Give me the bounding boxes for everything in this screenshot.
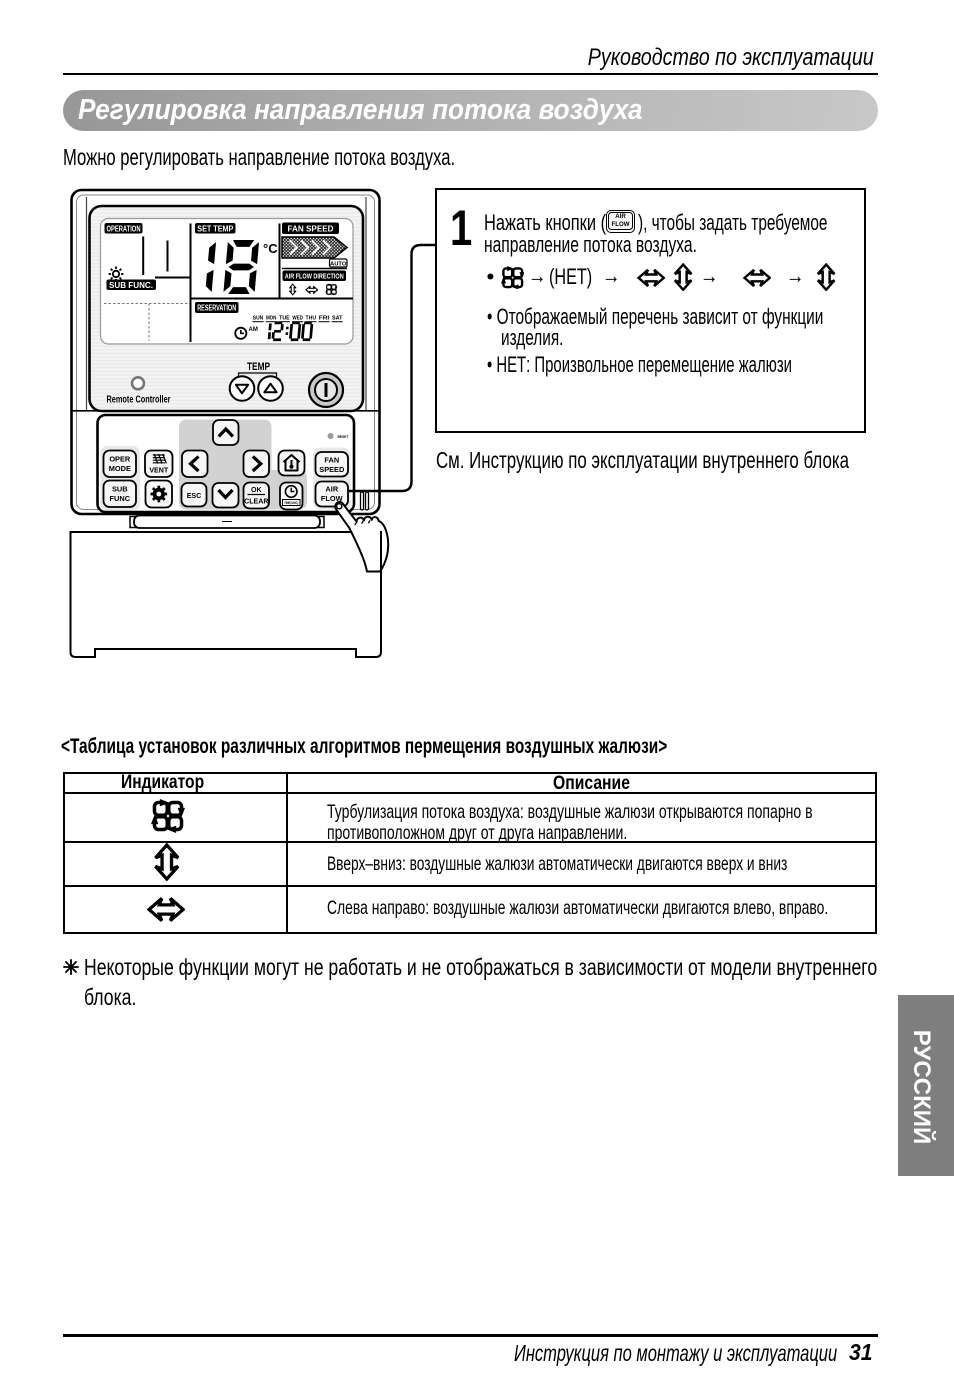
svg-text:SUN: SUN: [253, 316, 264, 322]
svg-text:MODE: MODE: [109, 464, 131, 473]
svg-text:AIR: AIR: [325, 485, 338, 494]
svg-text:TEMP: TEMP: [247, 361, 270, 373]
svg-text:TUE: TUE: [279, 316, 290, 322]
svg-text:ESC: ESC: [187, 492, 202, 500]
svg-text:OPERATION: OPERATION: [107, 224, 141, 233]
svg-text:THU: THU: [306, 316, 317, 322]
svg-text:RESERVATION: RESERVATION: [197, 304, 236, 313]
svg-text:VENT: VENT: [149, 467, 169, 475]
svg-text:AM: AM: [249, 327, 258, 333]
svg-text:CLEAR: CLEAR: [244, 498, 268, 506]
svg-text:TIME(ON/C): TIME(ON/C): [284, 501, 298, 505]
svg-text:°C: °C: [263, 241, 278, 256]
svg-text:OK: OK: [251, 486, 263, 494]
svg-text:WED: WED: [292, 316, 303, 322]
svg-text:SPEED: SPEED: [319, 465, 345, 474]
svg-text:FAN SPEED: FAN SPEED: [288, 225, 334, 234]
svg-text:SUB: SUB: [112, 485, 128, 494]
svg-text:FAN: FAN: [324, 456, 339, 465]
svg-text:FRI: FRI: [319, 316, 330, 322]
svg-text:FUNC: FUNC: [110, 494, 131, 503]
svg-text:SAT: SAT: [332, 316, 343, 322]
svg-text:SET TEMP: SET TEMP: [197, 224, 234, 233]
svg-text:Remote Controller: Remote Controller: [107, 394, 171, 406]
svg-text:AUTO: AUTO: [330, 262, 347, 268]
svg-text:OPER: OPER: [109, 455, 131, 464]
svg-text:RESET: RESET: [338, 434, 349, 439]
svg-text:MON: MON: [266, 316, 277, 322]
svg-text:SUB FUNC.: SUB FUNC.: [109, 281, 153, 290]
svg-text:AIR FLOW DIRECTION: AIR FLOW DIRECTION: [285, 274, 344, 281]
